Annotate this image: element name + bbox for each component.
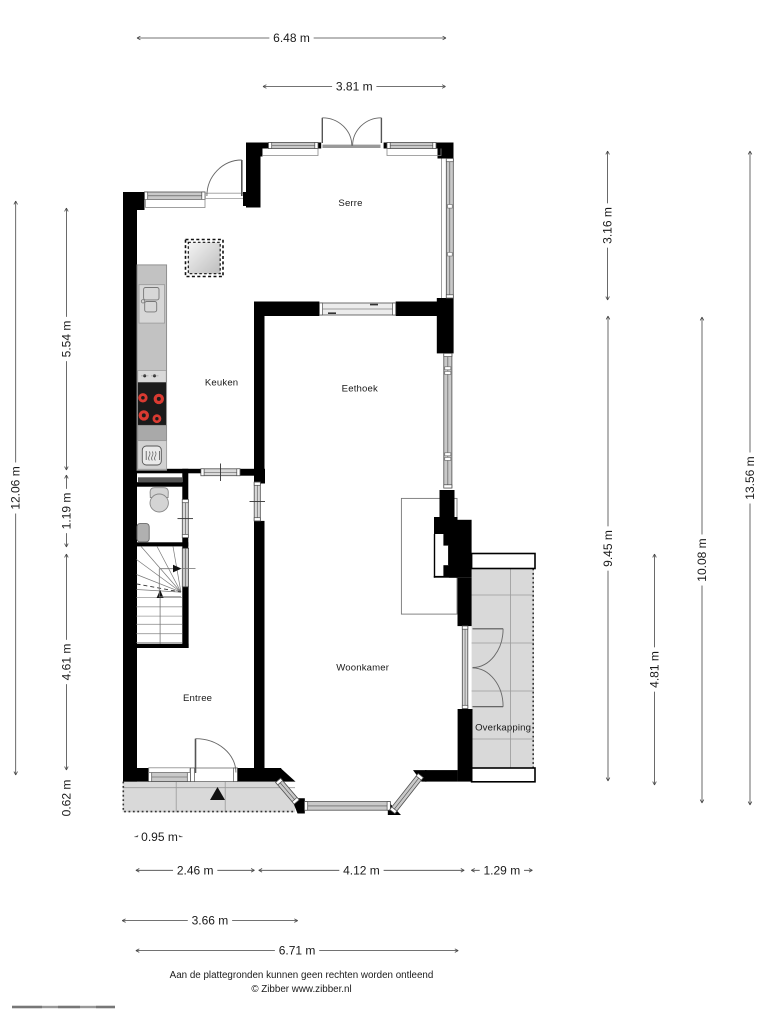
svg-text:Aan de plattegronden kunnen ge: Aan de plattegronden kunnen geen rechten… [170, 970, 434, 981]
svg-text:0.95 m: 0.95 m [141, 830, 178, 844]
svg-text:10.08 m: 10.08 m [695, 538, 709, 581]
svg-text:6.71 m: 6.71 m [279, 944, 316, 958]
svg-text:0.62 m: 0.62 m [59, 780, 73, 817]
svg-text:Eethoek: Eethoek [342, 384, 378, 395]
svg-text:9.45 m: 9.45 m [601, 530, 615, 567]
svg-text:3.81 m: 3.81 m [336, 80, 373, 94]
svg-text:1.19 m: 1.19 m [59, 493, 73, 530]
svg-text:3.66 m: 3.66 m [192, 914, 229, 928]
svg-text:12.06 m: 12.06 m [9, 466, 23, 509]
svg-text:3.16 m: 3.16 m [601, 207, 615, 244]
svg-text:2.46 m: 2.46 m [177, 863, 214, 877]
svg-text:Serre: Serre [338, 198, 362, 209]
svg-text:4.81 m: 4.81 m [648, 651, 662, 688]
svg-text:© Zibber www.zibber.nl: © Zibber www.zibber.nl [251, 984, 351, 995]
svg-text:1.29 m: 1.29 m [484, 863, 521, 877]
svg-text:4.61 m: 4.61 m [59, 644, 73, 681]
svg-text:Overkapping: Overkapping [475, 723, 531, 734]
svg-text:6.48 m: 6.48 m [273, 31, 310, 45]
svg-text:Entree: Entree [183, 693, 212, 704]
svg-text:Keuken: Keuken [205, 377, 238, 388]
svg-text:Woonkamer: Woonkamer [336, 662, 390, 673]
svg-text:4.12 m: 4.12 m [343, 863, 380, 877]
svg-text:13.56 m: 13.56 m [743, 456, 757, 499]
svg-text:5.54 m: 5.54 m [59, 321, 73, 358]
